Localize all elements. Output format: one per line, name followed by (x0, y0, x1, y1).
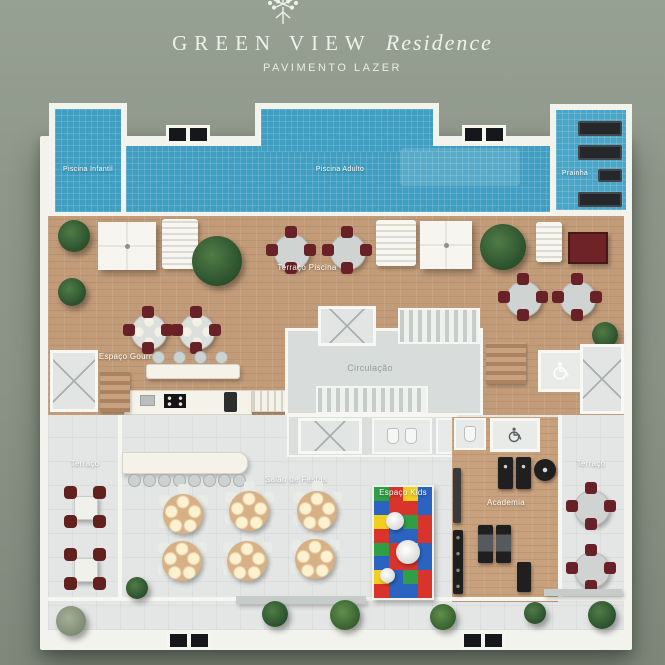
bush (262, 601, 288, 627)
banquet-table (217, 531, 277, 591)
elevator (50, 350, 98, 412)
kids-mat-tile (403, 501, 418, 515)
wheelchair-icon (550, 360, 572, 382)
round-table (500, 275, 546, 321)
bar-stool (194, 351, 207, 364)
gym-bench (517, 562, 531, 592)
kids-mat-tile (403, 570, 418, 584)
label-terraco-esquerdo: Terraço (52, 459, 118, 468)
kids-mat-tile (374, 543, 389, 557)
brand-name-script: Residence (386, 30, 493, 56)
stairs (100, 372, 130, 412)
plant (56, 606, 86, 636)
salao-bar-counter (122, 452, 248, 474)
bar-stool (173, 351, 186, 364)
sun-lounger (578, 121, 622, 136)
bush (192, 236, 242, 286)
sun-lounger (578, 145, 622, 160)
kids-mat-tile (389, 584, 404, 598)
dumbbell-rack (453, 530, 463, 594)
page: { "header": { "brand": "GREEN VIEW", "br… (0, 0, 665, 665)
gym-round-table (534, 459, 556, 481)
sun-lounger (376, 220, 416, 266)
brand-title: GREEN VIEW Residence (0, 30, 665, 56)
kids-mat-tile (418, 501, 433, 515)
stairs (316, 386, 428, 414)
sun-lounger (536, 222, 562, 262)
banquet-table (285, 529, 345, 589)
pool-piscina-adulto-upper (261, 109, 433, 152)
treadmill (478, 525, 493, 563)
tree-icon (261, 0, 305, 28)
refrigerator (224, 392, 237, 412)
gym-locker (516, 457, 531, 489)
terrace-table (63, 547, 107, 591)
terrace-table (568, 484, 614, 530)
bar-stool (215, 351, 228, 364)
gym-entry-room (454, 418, 486, 450)
plant (58, 278, 86, 306)
bar-stool (152, 351, 165, 364)
terrace-table (568, 546, 614, 592)
palm-plant (330, 600, 360, 630)
accessible-tile (538, 350, 584, 392)
label-piscina-infantil: Piscina Infantil (56, 166, 120, 173)
bush (524, 602, 546, 624)
square-table-dark (568, 232, 608, 264)
round-table (554, 275, 600, 321)
bottom-vent (461, 631, 505, 650)
kitchen-sink (140, 395, 155, 406)
bush (588, 601, 616, 629)
gourmet-bar-counter (146, 364, 240, 379)
gym-locker (498, 457, 513, 489)
sun-lounger (578, 192, 622, 207)
page-subtitle: PAVIMENTO LAZER (0, 62, 665, 74)
kids-mat-tile (418, 529, 433, 543)
palm-plant (430, 604, 456, 630)
cooktop (164, 394, 186, 408)
bush (480, 224, 526, 270)
kids-toy (380, 568, 395, 583)
accessible-restroom (490, 418, 540, 452)
kids-mat-tile (403, 515, 418, 529)
wall (558, 415, 562, 601)
elevator (298, 418, 362, 454)
elevator (580, 344, 624, 414)
kids-mat-tile (374, 529, 389, 543)
wall (118, 415, 122, 601)
label-academia: Academia (462, 498, 550, 507)
plant (58, 220, 90, 252)
bush (126, 577, 148, 599)
kids-mat-tile (389, 529, 404, 543)
label-terraco-piscina: Terraço Piscina (247, 263, 367, 272)
terrace-table (63, 485, 107, 529)
pool-edge-bench (462, 125, 506, 144)
treadmill (496, 525, 511, 563)
kids-mat-tile (374, 584, 389, 598)
gourmet-table (173, 308, 219, 354)
label-espaco-kids: Espaço Kids (373, 488, 433, 497)
kids-toy (386, 512, 404, 530)
pool-edge-bench (166, 125, 210, 144)
umbrella (98, 222, 156, 270)
gourmet-table (125, 308, 171, 354)
label-prainha: Prainha (552, 170, 598, 177)
elevator (318, 306, 376, 346)
sun-lounger (598, 169, 622, 182)
kids-mat-tile (418, 515, 433, 529)
kids-mat-tile (403, 584, 418, 598)
kids-mat-tile (418, 584, 433, 598)
kids-toy (396, 540, 420, 564)
sink (464, 426, 476, 442)
toilet (387, 428, 399, 444)
label-terraco-direito: Terraço (560, 459, 622, 468)
pool-piscina-infantil (55, 109, 121, 212)
kids-mat-tile (418, 556, 433, 570)
kids-mat-tile (418, 570, 433, 584)
toilet (405, 428, 417, 444)
bottom-vent (167, 631, 211, 650)
label-piscina-adulto: Piscina Adulto (290, 166, 390, 173)
umbrella (420, 221, 472, 269)
stairs (398, 308, 480, 344)
pool-shallow-ledge (400, 148, 520, 186)
stairs (486, 342, 526, 384)
brand-name: GREEN VIEW (172, 31, 372, 56)
banquet-table (152, 531, 212, 591)
bar-stool (128, 474, 141, 487)
gym-shelf (453, 468, 461, 523)
kids-mat-tile (374, 501, 389, 515)
restroom (372, 418, 432, 454)
label-circulacao: Circulação (310, 363, 430, 373)
wheelchair-icon (506, 426, 524, 444)
planter-bench (544, 589, 622, 596)
